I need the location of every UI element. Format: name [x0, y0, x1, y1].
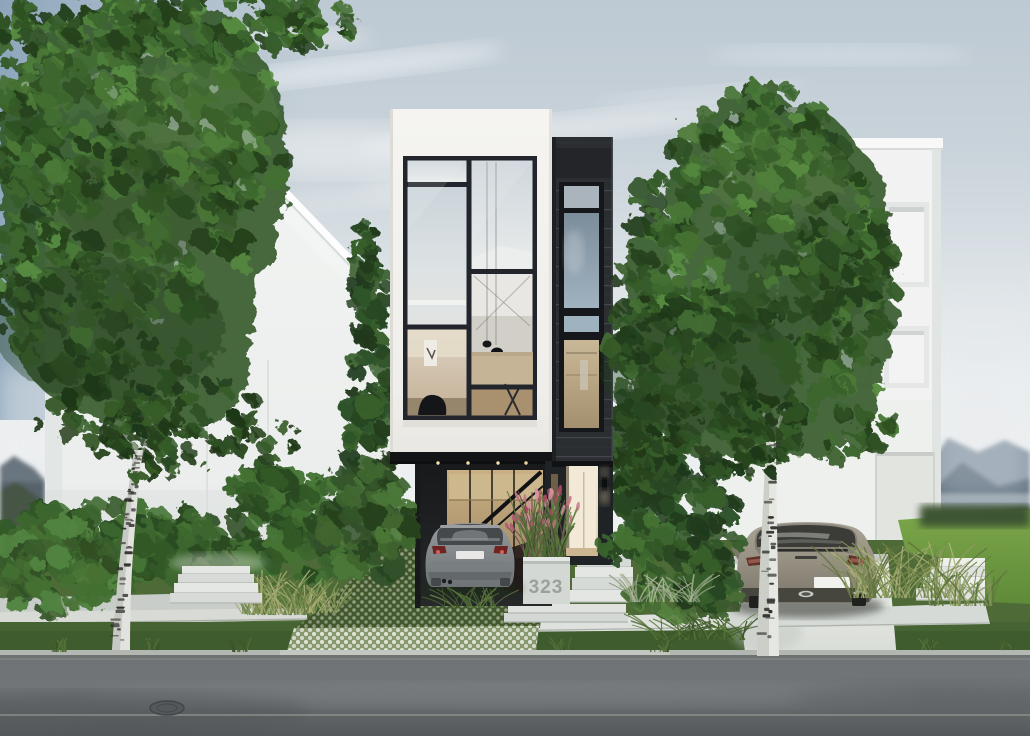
svg-text:323: 323	[529, 577, 564, 598]
